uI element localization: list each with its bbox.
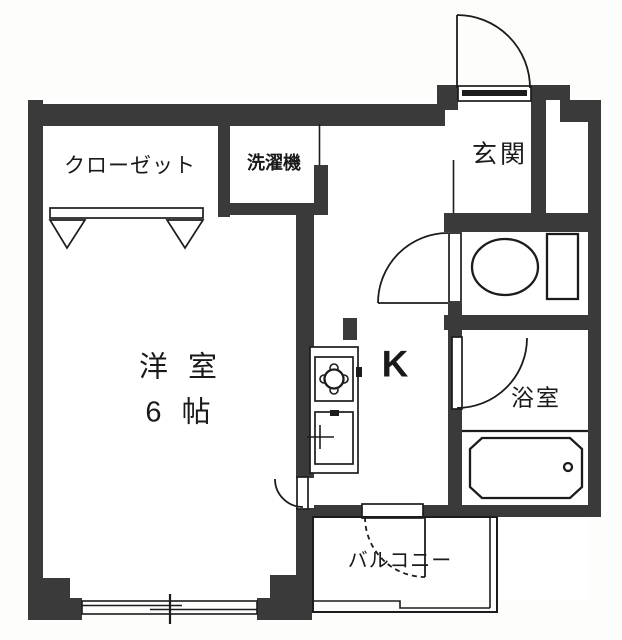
laundry-label: 洗濯機 — [247, 154, 301, 172]
wall-kitchen-bottom-left — [314, 505, 362, 517]
floor-plan-drawing — [0, 0, 622, 640]
bathtub-icon — [470, 438, 582, 498]
floor-plan: クローゼット 洗濯機 玄関 洋 室 6 帖 K 浴室 バルコニー — [0, 0, 622, 640]
toilet-tank — [547, 234, 578, 299]
bathroom-label: 浴室 — [511, 387, 561, 410]
entrance-door-swing-arc — [457, 15, 530, 88]
balcony-railing-line — [313, 601, 490, 608]
wall-closet-divider — [218, 104, 230, 217]
wall-top — [28, 104, 445, 126]
toilet-icon — [472, 234, 578, 299]
main-room-label: 洋 室 — [139, 354, 223, 383]
closet-door-track — [50, 208, 203, 218]
balcony-doorway — [362, 504, 423, 518]
bathroom-door-leaf — [452, 337, 462, 409]
wall-toilet-bath-divider — [444, 315, 601, 330]
wall-bottom-right — [257, 598, 312, 620]
wall-left-outer — [28, 100, 43, 620]
toilet-doorway — [449, 233, 461, 302]
kitchen-label: K — [382, 346, 409, 383]
wall-laundry-right-post — [314, 165, 328, 215]
entrance-label: 玄関 — [472, 143, 528, 168]
entrance-door — [457, 15, 531, 101]
wall-kitchen-stub — [343, 318, 357, 340]
wall-entrance-right — [531, 95, 546, 215]
kitchen-unit — [307, 347, 362, 473]
main-room-door-leaf — [297, 477, 308, 509]
wall-bath-bottom — [448, 505, 601, 517]
wall-bottom-left-step — [43, 578, 70, 600]
kitchen-counter-knob — [356, 367, 362, 377]
wall-above-toilet — [444, 213, 601, 232]
main-room-size: 6 帖 — [145, 399, 216, 428]
sink-spout — [330, 410, 339, 416]
wall-entry-jamb-left — [437, 85, 458, 110]
wall-right-outer — [588, 100, 601, 517]
wall-toilet-door-post — [448, 303, 462, 317]
burner-ring — [325, 370, 344, 389]
toilet-bowl — [472, 239, 538, 295]
balcony-label: バルコニー — [348, 551, 453, 571]
closet-label: クローゼット — [64, 156, 196, 177]
bathtub-drain — [564, 463, 572, 471]
entrance-threshold-bar — [462, 90, 527, 96]
wall-bottom-left — [28, 598, 82, 620]
wall-kitchen-bottom-right — [423, 505, 448, 517]
